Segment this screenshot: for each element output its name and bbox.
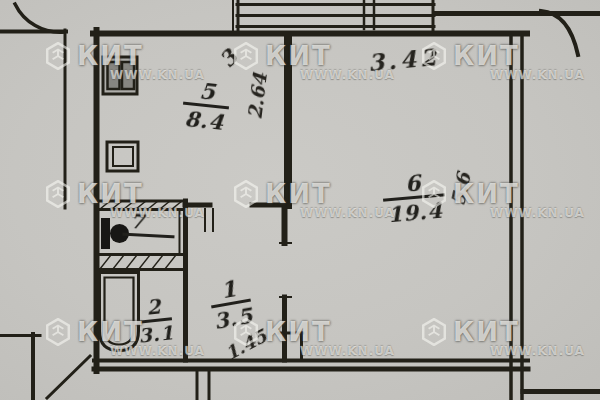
hatched-wall-bath-top (96, 255, 185, 270)
hatched-wall-toilet-top (96, 201, 185, 210)
room-area: 19.4 (387, 200, 444, 226)
room-area: 8.4 (184, 108, 226, 133)
floorplan-scan-page: 5 8.4 6 19.4 7 2 3.1 1 3.5 3.42 5.6 2.64… (0, 0, 600, 400)
stove-icon (103, 57, 137, 94)
neighbor-door-arc (541, 11, 578, 55)
fraction-bar (122, 233, 174, 239)
room-area: 3.1 (138, 323, 176, 346)
room-label-living: 6 19.4 (376, 169, 452, 226)
room-label-toilet: 7 (119, 211, 178, 242)
sink-icon (107, 142, 138, 171)
room-area: 3.5 (212, 304, 255, 332)
room-label-bathroom: 2 3.1 (130, 295, 181, 347)
room-number: 5 (199, 79, 217, 102)
room-number: 6 (404, 171, 421, 194)
room-number: 2 (146, 296, 162, 317)
entrance-door-arc (15, 4, 64, 32)
stair-diagonal (47, 356, 90, 398)
room-label-hallway: 1 3.5 (202, 274, 260, 333)
room-number: 1 (219, 277, 238, 301)
floorplan-drawing (0, 0, 600, 400)
room-number: 7 (120, 211, 145, 232)
room-label-kitchen: 5 8.4 (173, 77, 238, 134)
